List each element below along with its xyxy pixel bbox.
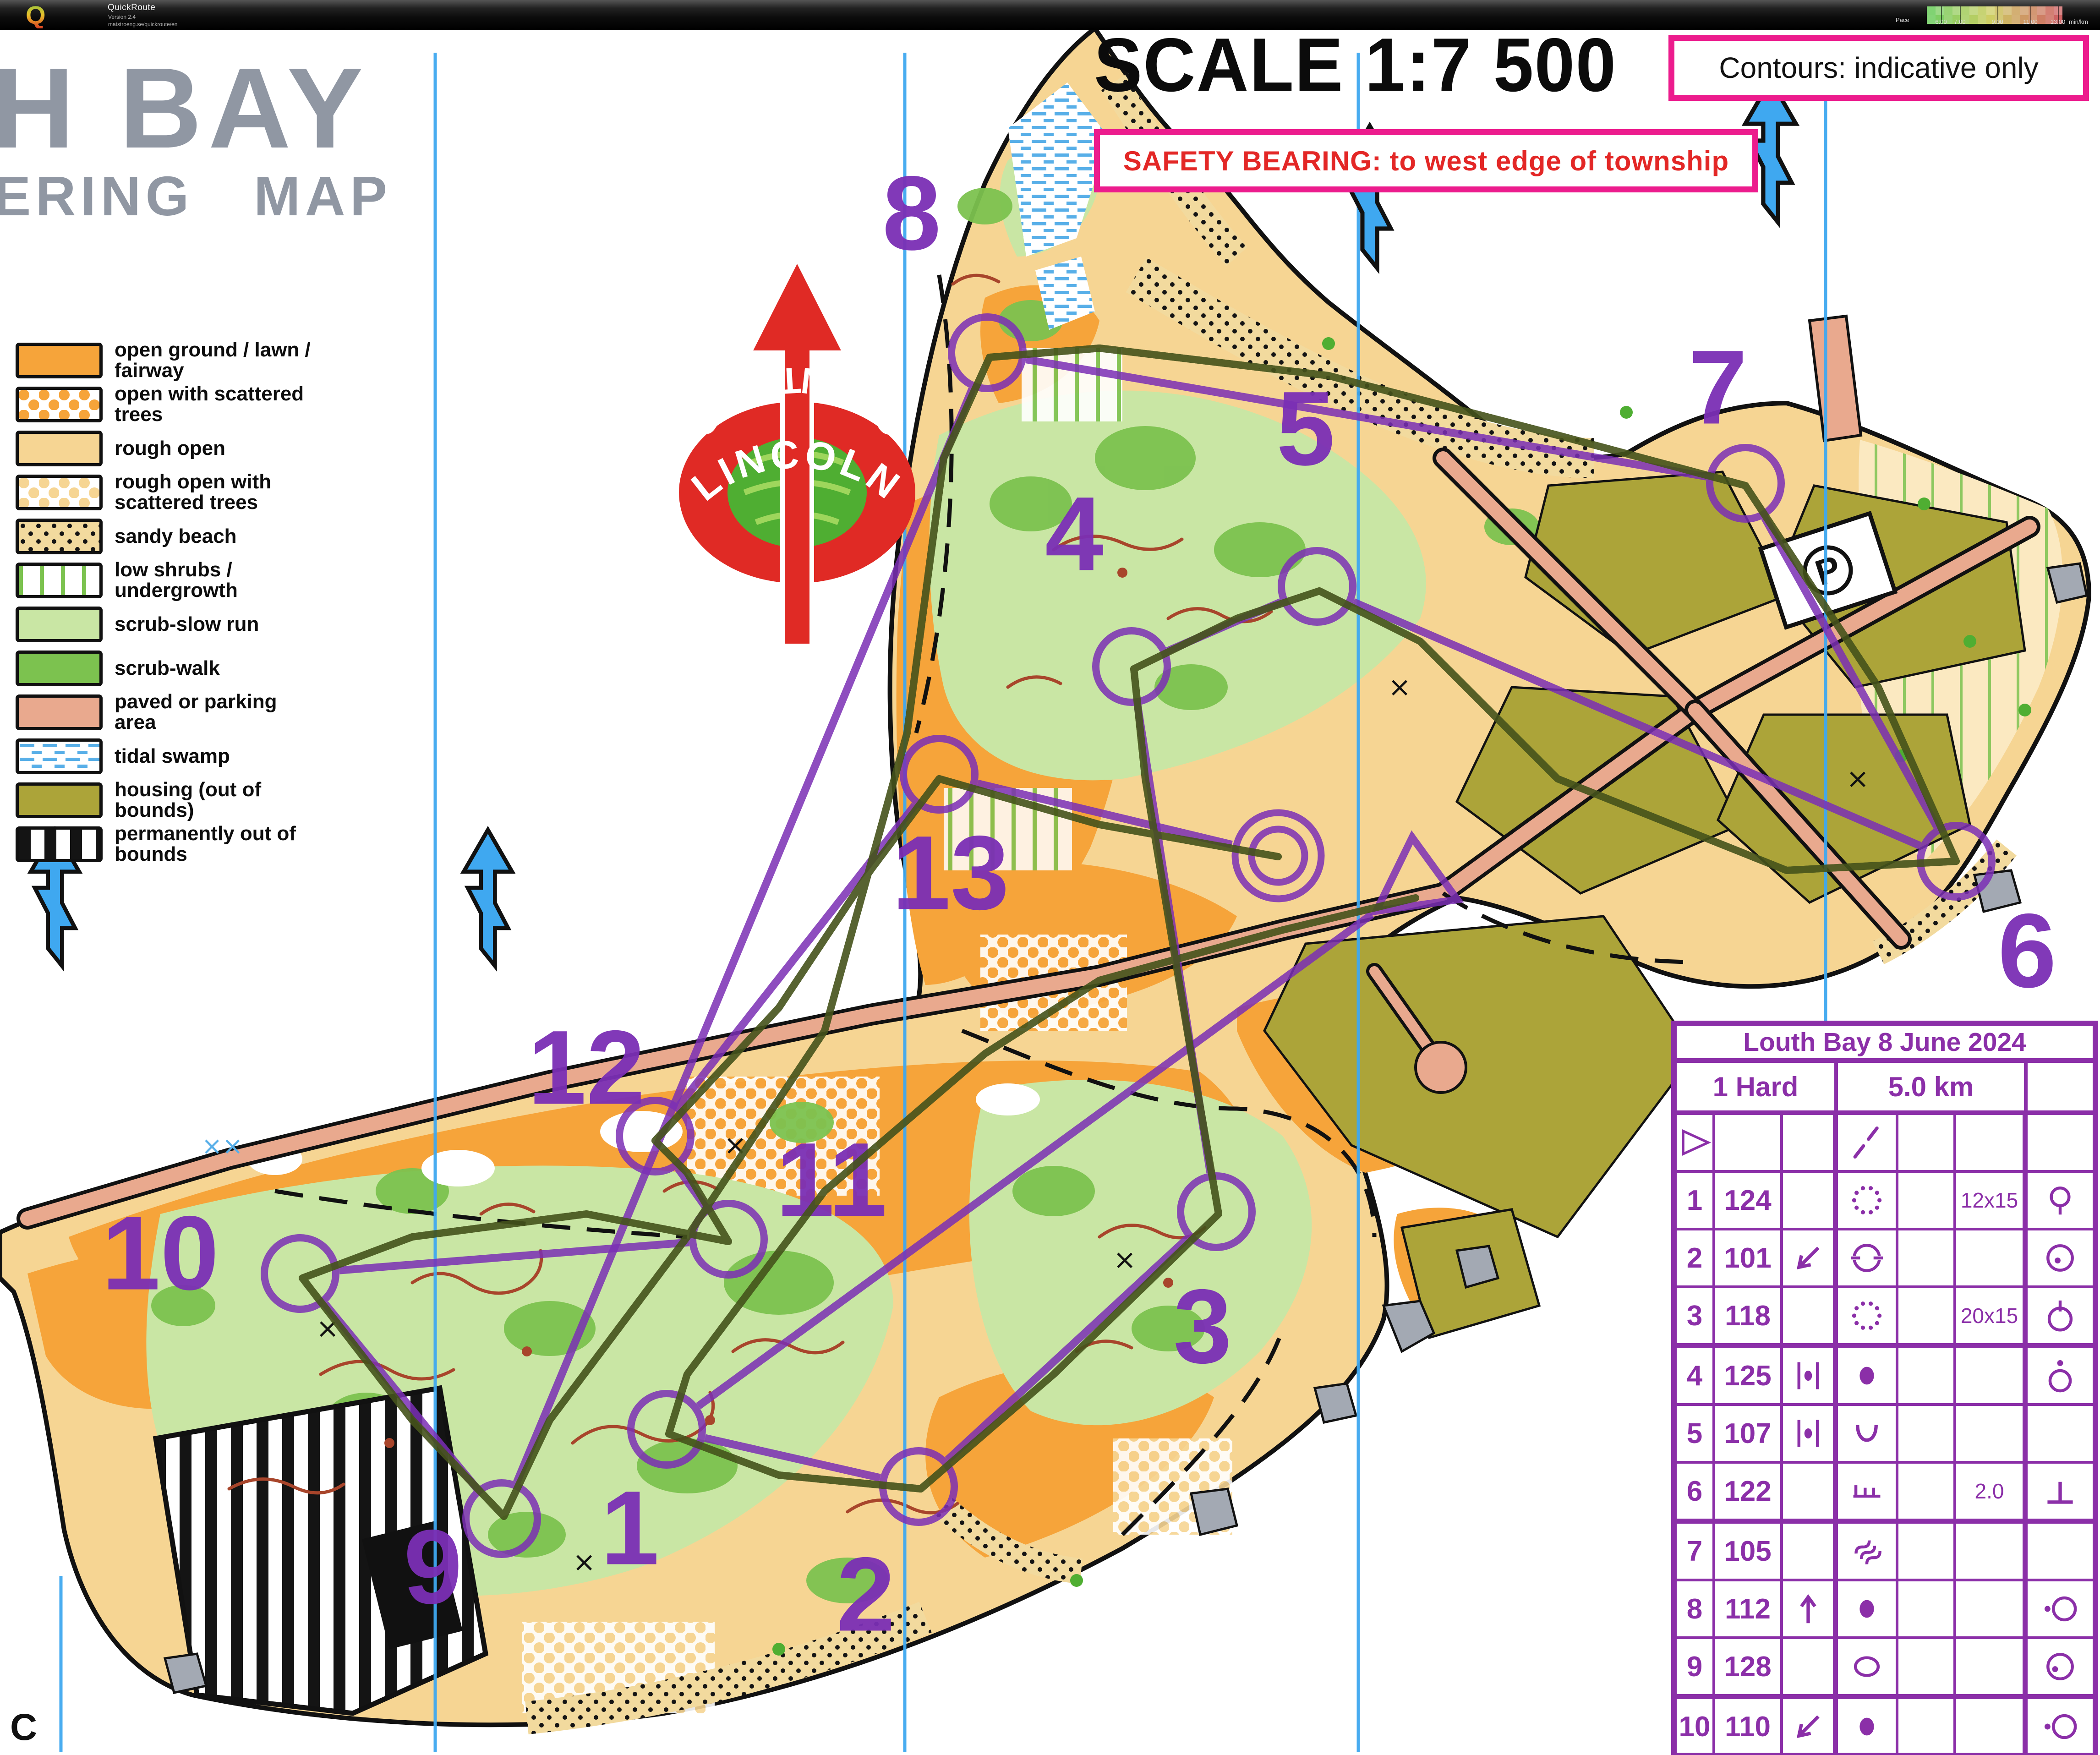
pace-unit-label: min/km — [2069, 18, 2088, 25]
desc-cell-r10-b: 110 — [1715, 1699, 1783, 1755]
desc-cell-r1-e — [1898, 1173, 1956, 1230]
desc-cell-r10-g — [2028, 1699, 2093, 1755]
course-length-label: 5.0 km — [1838, 1063, 2028, 1110]
titlebar[interactable]: Q QuickRoute Version 2.4 matstroeng.se/q… — [0, 0, 2100, 30]
desc-cell-r4-c — [1783, 1348, 1838, 1406]
desc-cell-r0-a — [1677, 1115, 1715, 1173]
control-number-12: 12 — [528, 1009, 645, 1126]
pace-tick-label: 9:00 — [1991, 18, 2003, 25]
legend-label: open with scattered trees — [115, 384, 312, 425]
control-description-grid: 112412x152101311820x154125510761222.0710… — [1677, 1115, 2093, 1755]
legend-swatch-solid-salmon — [16, 694, 103, 730]
pace-tick-label: 6:00 — [1935, 18, 1947, 25]
legend-swatch-solid-orange — [16, 343, 103, 378]
legend-label: rough open — [115, 438, 225, 459]
desc-cell-r0-c — [1783, 1115, 1838, 1173]
desc-cell-r1-f: 12x15 — [1956, 1173, 2028, 1230]
desc-cell-r5-b: 107 — [1715, 1406, 1783, 1464]
course-class-label: 1 Hard — [1677, 1063, 1838, 1110]
control-description-sheet: Louth Bay 8 June 2024 1 Hard 5.0 km 1124… — [1671, 1021, 2098, 1755]
partial-corner-text: C — [10, 1706, 37, 1749]
desc-cell-r2-d — [1838, 1230, 1898, 1288]
desc-cell-r3-a: 3 — [1677, 1288, 1715, 1348]
desc-cell-r4-g — [2028, 1348, 2093, 1406]
legend-swatch-swamp — [16, 738, 103, 774]
map-legend: open ground / lawn / fairwayopen with sc… — [16, 343, 312, 870]
legend-item: housing (out of bounds) — [16, 782, 312, 818]
desc-cell-r9-a: 9 — [1677, 1639, 1715, 1699]
course-title: Louth Bay 8 June 2024 — [1677, 1026, 2093, 1058]
legend-swatch-solid-lgreen — [16, 607, 103, 642]
app-version: Version 2.4 — [108, 14, 136, 20]
desc-cell-r7-g — [2028, 1524, 2093, 1581]
control-number-13: 13 — [892, 814, 1009, 932]
legend-label: housing (out of bounds) — [115, 780, 312, 821]
desc-cell-r2-e — [1898, 1230, 1956, 1288]
desc-cell-r2-b: 101 — [1715, 1230, 1783, 1288]
desc-cell-r7-d — [1838, 1524, 1898, 1581]
desc-cell-r3-c — [1783, 1288, 1838, 1348]
legend-item: tidal swamp — [16, 738, 312, 774]
desc-cell-r6-d — [1838, 1464, 1898, 1524]
legend-swatch-solid-olive — [16, 782, 103, 818]
desc-cell-r4-b: 125 — [1715, 1348, 1783, 1406]
north-arrow-icon — [464, 830, 512, 966]
desc-cell-r3-f: 20x15 — [1956, 1288, 2028, 1348]
desc-cell-r9-c — [1783, 1639, 1838, 1699]
control-number-4: 4 — [1045, 475, 1104, 593]
legend-swatch-dots-tan — [16, 475, 103, 510]
control-number-9: 9 — [404, 1508, 462, 1626]
desc-cell-r6-c — [1783, 1464, 1838, 1524]
desc-cell-r1-a: 1 — [1677, 1173, 1715, 1230]
legend-item: paved or parking area — [16, 694, 312, 730]
control-number-3: 3 — [1173, 1268, 1232, 1385]
desc-cell-r6-g — [2028, 1464, 2093, 1524]
legend-swatch-dots-orange — [16, 387, 103, 422]
pace-tick-label: 13:00 — [2051, 18, 2066, 25]
legend-item: permanently out of bounds — [16, 826, 312, 862]
desc-cell-r7-b: 105 — [1715, 1524, 1783, 1581]
desc-cell-r6-e — [1898, 1464, 1956, 1524]
legend-label: tidal swamp — [115, 746, 230, 767]
desc-cell-r10-f — [1956, 1699, 2028, 1755]
legend-label: paved or parking area — [115, 692, 312, 733]
desc-cell-r5-f — [1956, 1406, 2028, 1464]
legend-swatch-bars-black — [16, 826, 103, 862]
desc-cell-r5-d — [1838, 1406, 1898, 1464]
desc-cell-r7-f — [1956, 1524, 2028, 1581]
desc-cell-r2-f — [1956, 1230, 2028, 1288]
svg-text:×: × — [1846, 763, 1869, 795]
desc-cell-r7-e — [1898, 1524, 1956, 1581]
desc-cell-r1-d — [1838, 1173, 1898, 1230]
desc-cell-r8-a: 8 — [1677, 1581, 1715, 1639]
desc-cell-r5-c — [1783, 1406, 1838, 1464]
desc-cell-r8-e — [1898, 1581, 1956, 1639]
desc-cell-r0-d — [1838, 1115, 1898, 1173]
desc-cell-r8-c — [1783, 1581, 1838, 1639]
desc-cell-r7-c — [1783, 1524, 1838, 1581]
app-title: QuickRoute — [108, 3, 155, 13]
map-title-line1: H BAY — [0, 42, 370, 174]
legend-swatch-solid-tan — [16, 431, 103, 466]
desc-cell-r4-e — [1898, 1348, 1956, 1406]
pace-tick-label: 7:00 — [1954, 18, 1965, 25]
pace-label: Pace — [1896, 16, 1909, 23]
desc-cell-r5-a: 5 — [1677, 1406, 1715, 1464]
pace-tick-label: 11:00 — [2023, 18, 2038, 25]
legend-label: rough open with scattered trees — [115, 472, 312, 513]
legend-label: permanently out of bounds — [115, 824, 312, 865]
desc-cell-r2-g — [2028, 1230, 2093, 1288]
desc-cell-r9-e — [1898, 1639, 1956, 1699]
map-scale-text: SCALE 1:7 500 — [1094, 22, 1617, 109]
legend-swatch-sand — [16, 519, 103, 554]
map-title-line2: ERING MAP — [0, 164, 392, 228]
svg-text:××: ×× — [202, 1132, 243, 1160]
desc-cell-r8-b: 112 — [1715, 1581, 1783, 1639]
legend-swatch-solid-mgreen — [16, 651, 103, 686]
quickroute-window: Q QuickRoute Version 2.4 matstroeng.se/q… — [0, 0, 2100, 1755]
desc-cell-r2-a: 2 — [1677, 1230, 1715, 1288]
legend-label: low shrubs / undergrowth — [115, 560, 312, 601]
desc-cell-r0-g — [2028, 1115, 2093, 1173]
desc-cell-r1-g — [2028, 1173, 2093, 1230]
desc-cell-r10-a: 10 — [1677, 1699, 1715, 1755]
legend-swatch-stripes-green — [16, 563, 103, 598]
lincoln-orienteers-logo: LINCOLN ORIENTEERS — [664, 243, 930, 664]
desc-cell-r3-g — [2028, 1288, 2093, 1348]
legend-label: open ground / lawn / fairway — [115, 340, 312, 381]
desc-cell-r5-g — [2028, 1406, 2093, 1464]
legend-item: scrub-walk — [16, 651, 312, 686]
desc-cell-r10-d — [1838, 1699, 1898, 1755]
desc-cell-r6-b: 122 — [1715, 1464, 1783, 1524]
svg-text:×: × — [1113, 1244, 1136, 1276]
control-number-6: 6 — [1998, 892, 2056, 1010]
desc-cell-r3-b: 118 — [1715, 1288, 1783, 1348]
desc-cell-r2-c — [1783, 1230, 1838, 1288]
control-number-1: 1 — [601, 1469, 659, 1587]
desc-cell-r8-g — [2028, 1581, 2093, 1639]
legend-label: scrub-slow run — [115, 614, 259, 635]
svg-text:Q: Q — [26, 2, 46, 28]
desc-cell-r9-g — [2028, 1639, 2093, 1699]
desc-cell-r9-f — [1956, 1639, 2028, 1699]
desc-cell-r5-e — [1898, 1406, 1956, 1464]
svg-text:×: × — [1388, 671, 1411, 703]
course-header-row: 1 Hard 5.0 km — [1677, 1058, 2093, 1115]
legend-item: rough open with scattered trees — [16, 475, 312, 510]
desc-cell-r9-d — [1838, 1639, 1898, 1699]
legend-item: rough open — [16, 431, 312, 466]
control-number-10: 10 — [102, 1194, 219, 1312]
safety-bearing-box: SAFETY BEARING: to west edge of township — [1094, 129, 1758, 192]
control-number-11: 11 — [776, 1121, 887, 1239]
desc-cell-r0-e — [1898, 1115, 1956, 1173]
svg-text:×: × — [573, 1546, 596, 1578]
contours-note-box: Contours: indicative only — [1668, 35, 2089, 101]
legend-item: open with scattered trees — [16, 387, 312, 422]
desc-cell-r0-f — [1956, 1115, 2028, 1173]
desc-cell-r4-a: 4 — [1677, 1348, 1715, 1406]
legend-label: sandy beach — [115, 526, 237, 547]
desc-cell-r3-d — [1838, 1288, 1898, 1348]
desc-cell-r10-c — [1783, 1699, 1838, 1755]
quickroute-logo-icon: Q — [24, 2, 51, 28]
desc-cell-r8-f — [1956, 1581, 2028, 1639]
desc-cell-r1-b: 124 — [1715, 1173, 1783, 1230]
legend-item: sandy beach — [16, 519, 312, 554]
desc-cell-r3-e — [1898, 1288, 1956, 1348]
legend-item: open ground / lawn / fairway — [16, 343, 312, 378]
desc-cell-r1-c — [1783, 1173, 1838, 1230]
legend-item: scrub-slow run — [16, 607, 312, 642]
desc-cell-r10-e — [1898, 1699, 1956, 1755]
desc-cell-r8-d — [1838, 1581, 1898, 1639]
desc-cell-r9-b: 128 — [1715, 1639, 1783, 1699]
desc-cell-r6-f: 2.0 — [1956, 1464, 2028, 1524]
desc-cell-r0-b — [1715, 1115, 1783, 1173]
desc-cell-r4-d — [1838, 1348, 1898, 1406]
control-number-2: 2 — [837, 1536, 895, 1653]
desc-cell-r7-a: 7 — [1677, 1524, 1715, 1581]
desc-cell-r4-f — [1956, 1348, 2028, 1406]
control-number-7: 7 — [1689, 328, 1747, 446]
app-url: matstroeng.se/quickroute/en — [108, 21, 177, 27]
legend-label: scrub-walk — [115, 658, 220, 679]
control-number-5: 5 — [1276, 370, 1335, 487]
desc-cell-r6-a: 6 — [1677, 1464, 1715, 1524]
legend-item: low shrubs / undergrowth — [16, 563, 312, 598]
